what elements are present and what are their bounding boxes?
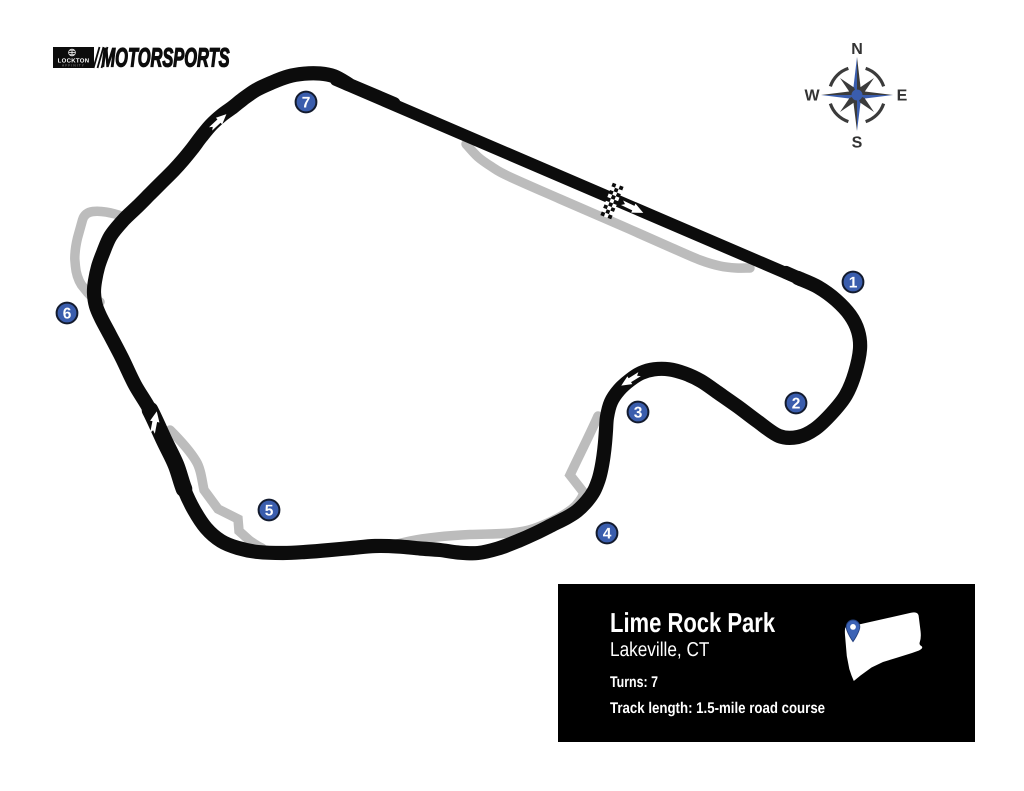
svg-text:7: 7 bbox=[302, 95, 311, 112]
svg-text:2: 2 bbox=[792, 396, 801, 413]
svg-text:5: 5 bbox=[265, 503, 274, 520]
svg-text:Turns: 7: Turns: 7 bbox=[610, 674, 658, 691]
svg-text:E: E bbox=[897, 88, 908, 105]
svg-text:4: 4 bbox=[603, 526, 612, 543]
svg-text:1: 1 bbox=[849, 275, 858, 292]
svg-text:AFFINITY: AFFINITY bbox=[62, 64, 85, 68]
svg-text:Lime Rock Park: Lime Rock Park bbox=[610, 607, 776, 638]
svg-text:6: 6 bbox=[63, 306, 72, 323]
svg-text:3: 3 bbox=[634, 405, 643, 422]
svg-text:S: S bbox=[852, 135, 863, 152]
svg-text:MOTORSPORTS: MOTORSPORTS bbox=[102, 43, 230, 73]
svg-text:W: W bbox=[804, 88, 820, 105]
svg-text:Lakeville, CT: Lakeville, CT bbox=[610, 639, 709, 661]
svg-text:N: N bbox=[851, 41, 863, 58]
svg-text:Track length: 1.5-mile road co: Track length: 1.5-mile road course bbox=[610, 700, 825, 717]
